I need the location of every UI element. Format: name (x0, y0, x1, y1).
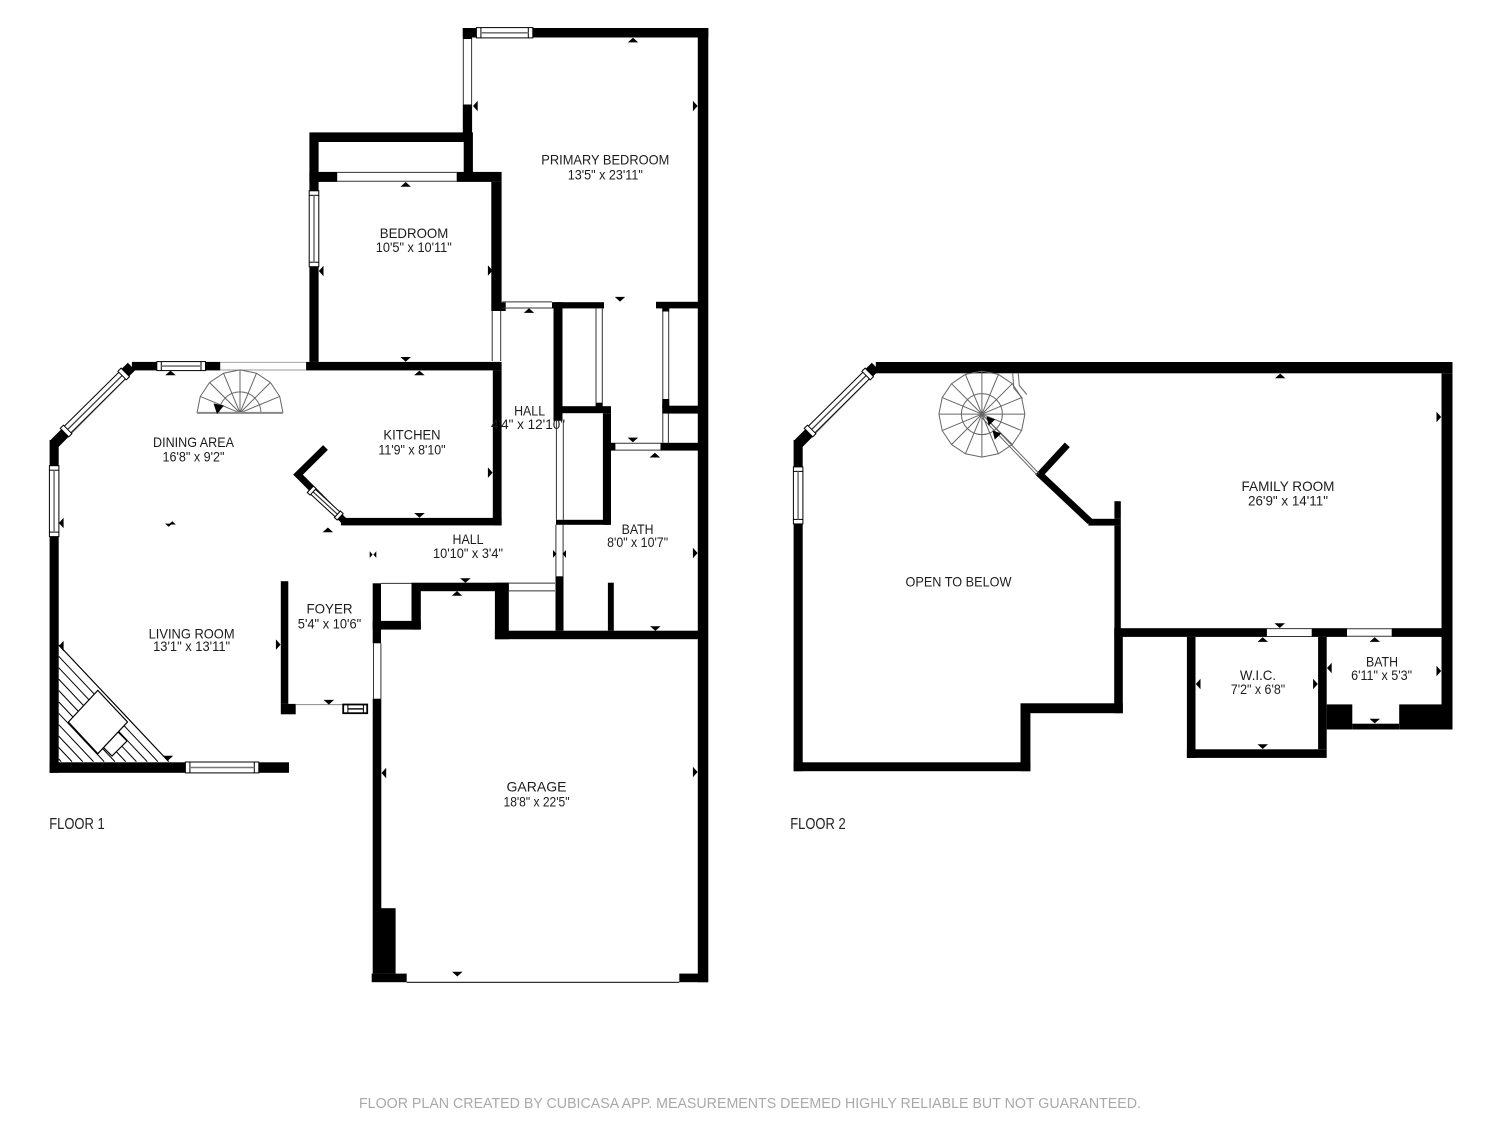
svg-text:5'4" x 10'6": 5'4" x 10'6" (298, 617, 361, 632)
svg-text:FOYER: FOYER (307, 602, 353, 617)
svg-text:HALL: HALL (453, 532, 484, 547)
svg-text:OPEN TO BELOW: OPEN TO BELOW (906, 575, 1012, 590)
svg-text:FAMILY ROOM: FAMILY ROOM (1242, 479, 1335, 494)
svg-text:8'0" x 10'7": 8'0" x 10'7" (607, 535, 668, 550)
svg-text:16'8" x 9'2": 16'8" x 9'2" (163, 450, 225, 465)
svg-text:KITCHEN: KITCHEN (383, 428, 440, 443)
svg-text:FLOOR 2: FLOOR 2 (790, 816, 846, 833)
svg-text:6'11" x 5'3": 6'11" x 5'3" (1351, 668, 1412, 683)
svg-text:10'10" x 3'4": 10'10" x 3'4" (433, 546, 503, 561)
svg-text:10'5" x 10'11": 10'5" x 10'11" (376, 240, 452, 255)
svg-text:26'9" x 14'11": 26'9" x 14'11" (1248, 494, 1328, 509)
svg-text:GARAGE: GARAGE (507, 780, 567, 795)
svg-text:11'9" x 8'10": 11'9" x 8'10" (378, 443, 445, 458)
svg-text:18'8" x 22'5": 18'8" x 22'5" (504, 795, 570, 810)
svg-text:13'5" x 23'11": 13'5" x 23'11" (568, 168, 643, 183)
svg-text:4'4" x 12'10": 4'4" x 12'10" (491, 417, 565, 432)
svg-text:13'1" x 13'11": 13'1" x 13'11" (153, 639, 230, 654)
svg-text:PRIMARY BEDROOM: PRIMARY BEDROOM (541, 152, 669, 167)
svg-text:BATH: BATH (1366, 654, 1398, 669)
svg-text:W.I.C.: W.I.C. (1240, 668, 1276, 683)
svg-text:FLOOR 1: FLOOR 1 (49, 816, 105, 833)
svg-text:DINING AREA: DINING AREA (153, 435, 235, 450)
svg-text:FLOOR PLAN CREATED BY CUBICASA: FLOOR PLAN CREATED BY CUBICASA APP. MEAS… (359, 1095, 1141, 1112)
svg-text:BEDROOM: BEDROOM (380, 226, 449, 241)
svg-text:7'2" x 6'8": 7'2" x 6'8" (1231, 682, 1285, 697)
